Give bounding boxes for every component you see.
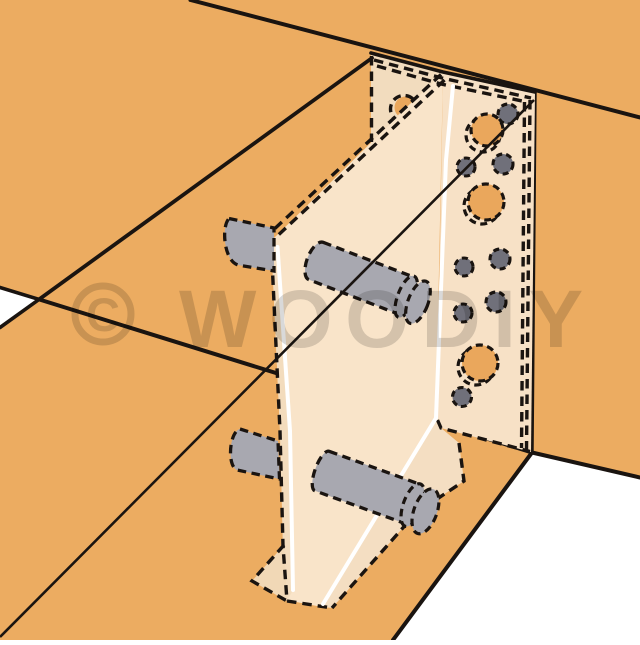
svg-text:C: C (86, 288, 120, 341)
svg-text:WOODIY: WOODIY (179, 274, 596, 365)
